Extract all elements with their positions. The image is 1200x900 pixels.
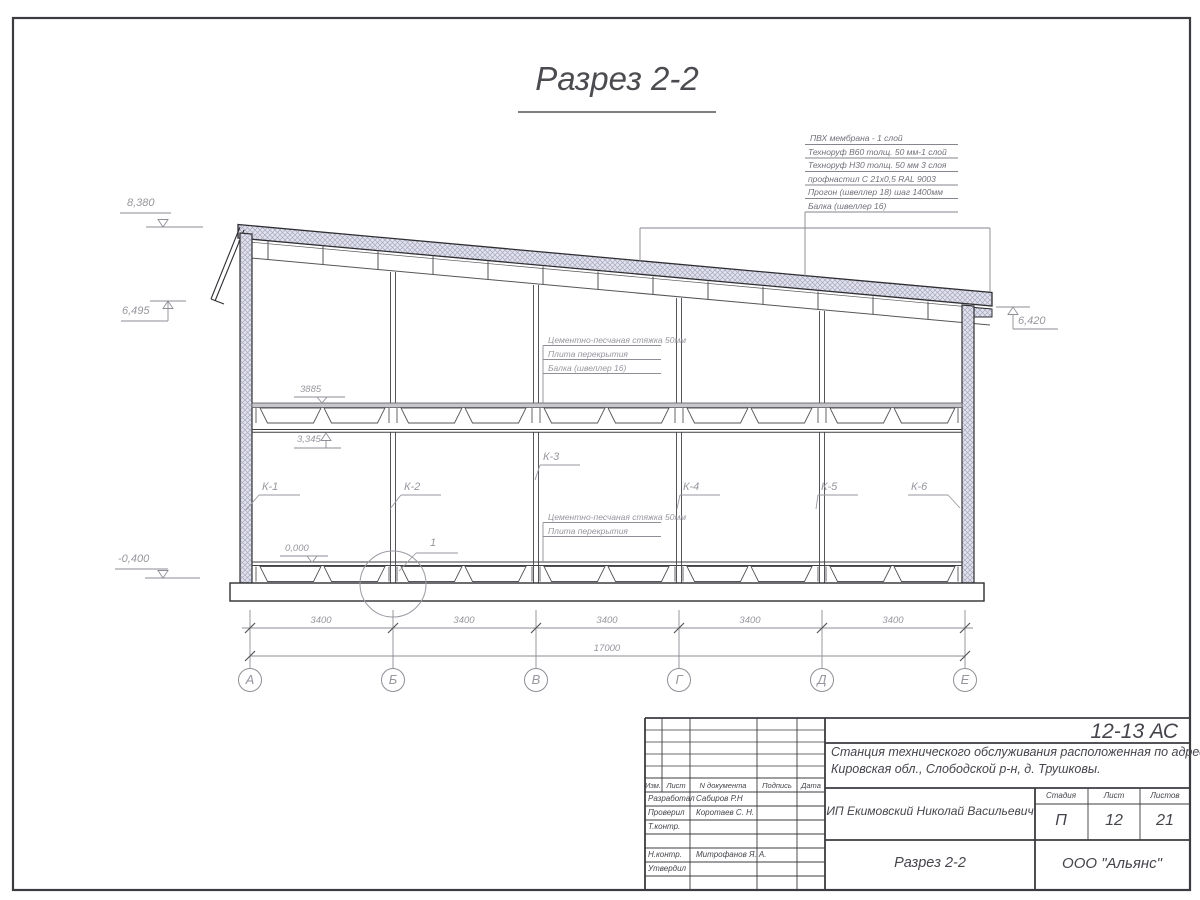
- sheets-total: 21: [1156, 813, 1174, 829]
- roof-callout-line: Прогон (швеллер 18) шаг 1400мм: [808, 188, 943, 197]
- total-dim: 17000: [594, 644, 620, 654]
- staff-role: Проверил: [648, 809, 685, 817]
- floor1-note: Цементно-песчаная стяжка 50мм: [548, 513, 686, 522]
- doc-code: 12-13 АС: [830, 721, 1178, 742]
- roof-callout-line: Балка (швеллер 16): [808, 202, 886, 211]
- foundation-beam: [230, 583, 984, 601]
- column-mark: К-5: [821, 482, 837, 493]
- roof-callout-line: Техноруф Н30 толщ. 50 мм 3 слоя: [808, 161, 946, 170]
- tb-header-podpis: Подпись: [762, 782, 792, 790]
- elevation-ground: -0,400: [118, 554, 149, 565]
- floor2-note: Балка (швеллер 16): [548, 364, 626, 373]
- roof-callout-line: ПВХ мембрана - 1 слой: [810, 134, 903, 143]
- tb-header-data: Дата: [801, 782, 821, 790]
- dim-slab-span: 3885: [300, 385, 321, 395]
- axis-bubble-label: Г: [675, 673, 682, 686]
- staff-role: Т.контр.: [648, 823, 680, 831]
- staff-name: Сабиров Р.Н: [696, 795, 743, 803]
- column-mark: К-4: [683, 482, 699, 493]
- column-mark: К-1: [262, 482, 278, 493]
- floor2-note: Плита перекрытия: [548, 350, 628, 359]
- staff-role: Н.контр.: [648, 851, 682, 859]
- axis-bubble-label: Е: [961, 673, 970, 686]
- bay-dim: 3400: [310, 616, 331, 626]
- project-description-line2: Кировская обл., Слободской р-н, д. Трушк…: [831, 763, 1101, 776]
- elevation-parapet-left: 6,495: [122, 306, 150, 317]
- elevation-roof-top: 8,380: [127, 198, 155, 209]
- column-mark: К-3: [543, 452, 559, 463]
- left-wall: [240, 233, 252, 583]
- stage-label: Стадия: [1046, 792, 1076, 800]
- floor1-note: Плита перекрытия: [548, 527, 628, 536]
- roof-callout-line: профнастил С 21х0,5 RAL 9003: [808, 175, 936, 184]
- sheet-label: Лист: [1104, 792, 1125, 800]
- sheet-title: Разрез 2-2: [894, 856, 966, 871]
- axis-bubble-label: В: [532, 673, 541, 686]
- floor2-note: Цементно-песчаная стяжка 50мм: [548, 336, 686, 345]
- tb-header-izm: Изм.: [645, 782, 661, 790]
- columns-lower: [391, 432, 825, 583]
- elevation-floor1: 0,000: [285, 544, 309, 554]
- organization-name: ООО "Альянс": [1062, 856, 1162, 871]
- axis-bubble-label: Д: [817, 673, 826, 686]
- staff-role: Разработал: [648, 795, 695, 803]
- axis-bubbles: [239, 669, 977, 692]
- elevation-floor2: 3,345: [297, 435, 321, 445]
- sheets-label: Листов: [1150, 792, 1179, 800]
- staff-name: Коротаев С. Н.: [696, 809, 754, 817]
- column-mark: К-6: [911, 482, 927, 493]
- bay-dim: 3400: [739, 616, 760, 626]
- bay-dim: 3400: [882, 616, 903, 626]
- elevation-eave-right: 6,420: [1018, 316, 1046, 327]
- right-wall: [962, 305, 974, 583]
- column-label-leaders: [246, 465, 960, 510]
- bay-dim: 3400: [453, 616, 474, 626]
- client-name: ИП Екимовский Николай Васильевич: [826, 805, 1033, 817]
- staff-name: Митрофанов Я. А.: [696, 851, 766, 859]
- stage-value: П: [1055, 813, 1067, 829]
- bay-dim: 3400: [596, 616, 617, 626]
- tb-header-list: Лист: [666, 782, 685, 790]
- staff-role: Утвердил: [648, 865, 686, 873]
- floor2-slabs: [256, 408, 958, 423]
- project-description-line1: Станция технического обслуживания распол…: [831, 746, 1200, 759]
- axis-bubble-label: А: [246, 673, 255, 686]
- tb-header-ndoc: N документа: [700, 782, 747, 790]
- drawing-sheet: Разрез 2-2 ПВХ мембрана - 1 слой Технору…: [0, 0, 1200, 900]
- sheet-number: 12: [1105, 813, 1123, 829]
- sheet-frame: [13, 18, 1190, 890]
- column-mark: К-2: [404, 482, 420, 493]
- detail-label: 1: [430, 538, 436, 549]
- page-title: Разрез 2-2: [535, 62, 699, 95]
- roof-callout-line: Техноруф В60 толщ. 50 мм-1 слой: [808, 148, 947, 157]
- axis-bubble-label: Б: [389, 673, 397, 686]
